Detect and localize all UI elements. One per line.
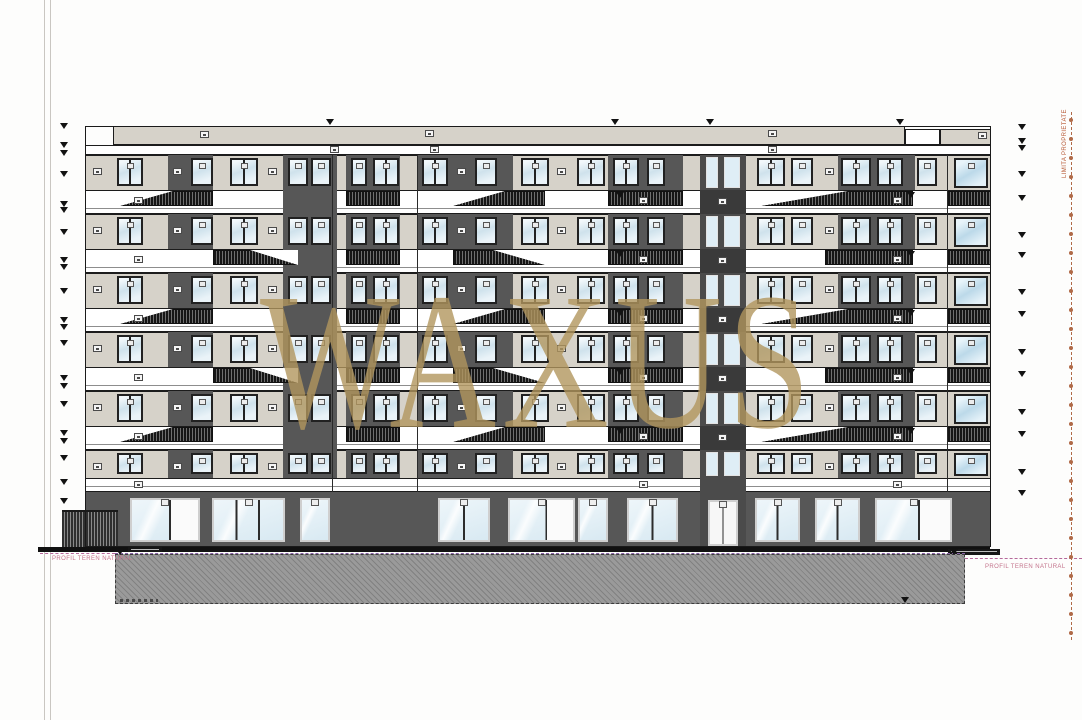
level-marker-icon <box>1018 138 1026 144</box>
ground-profile-label-left: PROFIL TEREN NATURAL <box>52 556 133 562</box>
ground-profile-dash-left <box>40 553 115 554</box>
level-marker-icon <box>60 479 68 485</box>
level-marker-icon <box>611 119 619 125</box>
level-marker-icon <box>60 288 68 294</box>
level-marker-icon <box>1018 431 1026 437</box>
property-line-dot <box>1069 156 1073 160</box>
property-line-dot <box>1069 441 1073 445</box>
level-marker-icon <box>1018 252 1026 258</box>
property-line-dot <box>1069 175 1073 179</box>
level-marker-icon <box>60 229 68 235</box>
property-line-dot <box>1069 384 1073 388</box>
property-line-dot <box>1069 460 1073 464</box>
property-line-dot <box>1069 213 1073 217</box>
property-line-dot <box>1069 517 1073 521</box>
property-line-dot <box>1069 403 1073 407</box>
property-line-dot <box>1069 289 1073 293</box>
level-marker-icon <box>901 597 909 603</box>
level-marker-icon <box>60 430 68 436</box>
level-marker-icon <box>1018 490 1026 496</box>
property-line-dot <box>1069 232 1073 236</box>
level-marker-icon <box>1018 145 1026 151</box>
property-line-dot <box>1069 479 1073 483</box>
level-marker-icon <box>60 123 68 129</box>
level-marker-icon <box>60 438 68 444</box>
level-marker-icon <box>1018 349 1026 355</box>
level-marker-icon <box>1018 409 1026 415</box>
level-marker-icon <box>60 401 68 407</box>
ground-line <box>38 547 990 552</box>
property-boundary-label: LIMITA PROPRIETATE <box>1062 109 1068 178</box>
ground-scribble <box>120 599 158 602</box>
property-line-dot <box>1069 555 1073 559</box>
property-line-dot <box>1069 137 1073 141</box>
level-marker-icon <box>60 375 68 381</box>
level-marker-icon <box>326 119 334 125</box>
level-marker-icon <box>1018 232 1026 238</box>
property-line <box>1071 112 1072 640</box>
sheet-edge-line <box>44 0 45 720</box>
building-outline <box>85 126 991 547</box>
sheet-edge-line <box>50 0 51 720</box>
level-marker-icon <box>1018 124 1026 130</box>
property-line-dot <box>1069 612 1073 616</box>
property-line-dot <box>1069 422 1073 426</box>
ground-profile-dash-right <box>965 558 1082 559</box>
property-line-dot <box>1069 574 1073 578</box>
ground-hatch <box>115 554 965 604</box>
level-marker-icon <box>60 455 68 461</box>
ground-profile-line <box>115 553 965 554</box>
level-marker-icon <box>1018 469 1026 475</box>
level-marker-icon <box>60 340 68 346</box>
ground-plate <box>128 547 162 552</box>
level-marker-icon <box>950 549 958 555</box>
level-marker-icon <box>896 119 904 125</box>
level-marker-icon <box>706 119 714 125</box>
property-line-dot <box>1069 194 1073 198</box>
property-line-dot <box>1069 346 1073 350</box>
level-marker-icon <box>60 150 68 156</box>
level-marker-icon <box>60 264 68 270</box>
property-line-dot <box>1069 536 1073 540</box>
level-marker-icon <box>1018 289 1026 295</box>
property-line-dot <box>1069 270 1073 274</box>
property-line-dot <box>1069 631 1073 635</box>
ground-profile-label-right: PROFIL TEREN NATURAL <box>985 564 1066 570</box>
level-marker-icon <box>1018 371 1026 377</box>
level-marker-icon <box>1018 195 1026 201</box>
property-line-dot <box>1069 308 1073 312</box>
level-marker-icon <box>60 142 68 148</box>
level-marker-icon <box>60 498 68 504</box>
level-marker-icon <box>116 549 124 555</box>
property-line-dot <box>1069 593 1073 597</box>
level-marker-icon <box>60 257 68 263</box>
level-marker-icon <box>60 383 68 389</box>
property-line-dot <box>1069 498 1073 502</box>
level-marker-icon <box>60 324 68 330</box>
property-line-dot <box>1069 251 1073 255</box>
property-line-dot <box>1069 327 1073 331</box>
property-line-dot <box>1069 118 1073 122</box>
level-marker-icon <box>1018 311 1026 317</box>
level-marker-icon <box>60 207 68 213</box>
property-line-dot <box>1069 365 1073 369</box>
elevation-drawing-canvas: WAXUS LIMITA PROPRIETATE PROFIL TEREN NA… <box>0 0 1082 720</box>
level-marker-icon <box>60 171 68 177</box>
level-marker-icon <box>60 317 68 323</box>
level-marker-icon <box>1018 171 1026 177</box>
